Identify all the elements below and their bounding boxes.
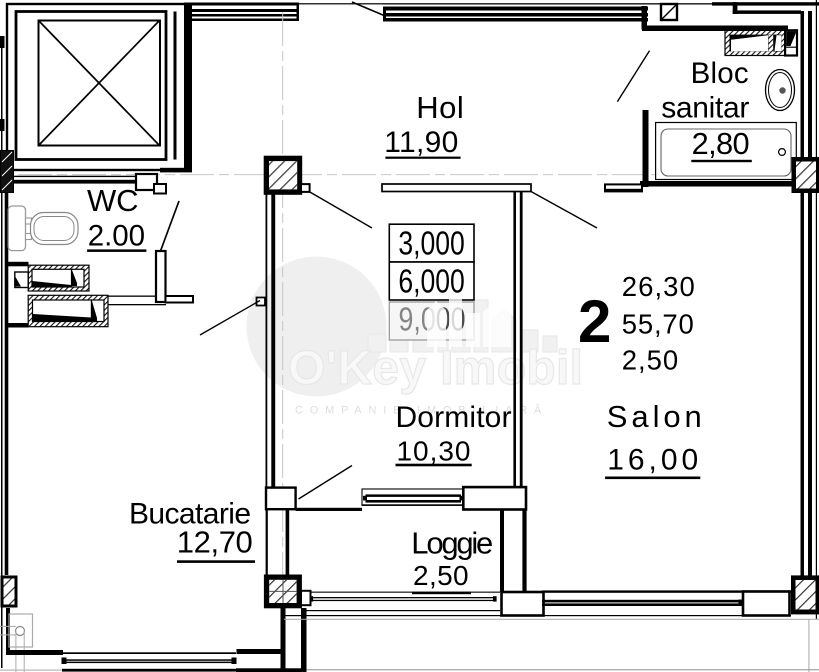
svg-text:2,80: 2,80 <box>692 126 750 161</box>
svg-text:Salon: Salon <box>607 399 702 434</box>
svg-text:2,50: 2,50 <box>622 344 678 375</box>
svg-text:10,30: 10,30 <box>397 435 471 466</box>
svg-text:Loggie: Loggie <box>411 525 493 560</box>
svg-text:WC: WC <box>87 183 139 218</box>
svg-text:2,50: 2,50 <box>413 560 469 591</box>
svg-text:Bloc: Bloc <box>691 57 749 90</box>
svg-text:2.00: 2.00 <box>88 219 145 252</box>
svg-text:12,70: 12,70 <box>177 524 253 559</box>
svg-text:26,30: 26,30 <box>622 271 695 302</box>
svg-text:16,00: 16,00 <box>607 444 698 477</box>
svg-text:Hol: Hol <box>416 90 464 125</box>
svg-text:55,70: 55,70 <box>622 309 694 340</box>
svg-text:2: 2 <box>578 288 611 355</box>
svg-text:Dormitor: Dormitor <box>396 401 512 434</box>
svg-text:11,90: 11,90 <box>384 126 458 159</box>
svg-text:sanitar: sanitar <box>661 92 749 125</box>
svg-text:3,000: 3,000 <box>398 226 465 263</box>
svg-text:O'Key Imobil: O'Key Imobil <box>288 342 583 395</box>
